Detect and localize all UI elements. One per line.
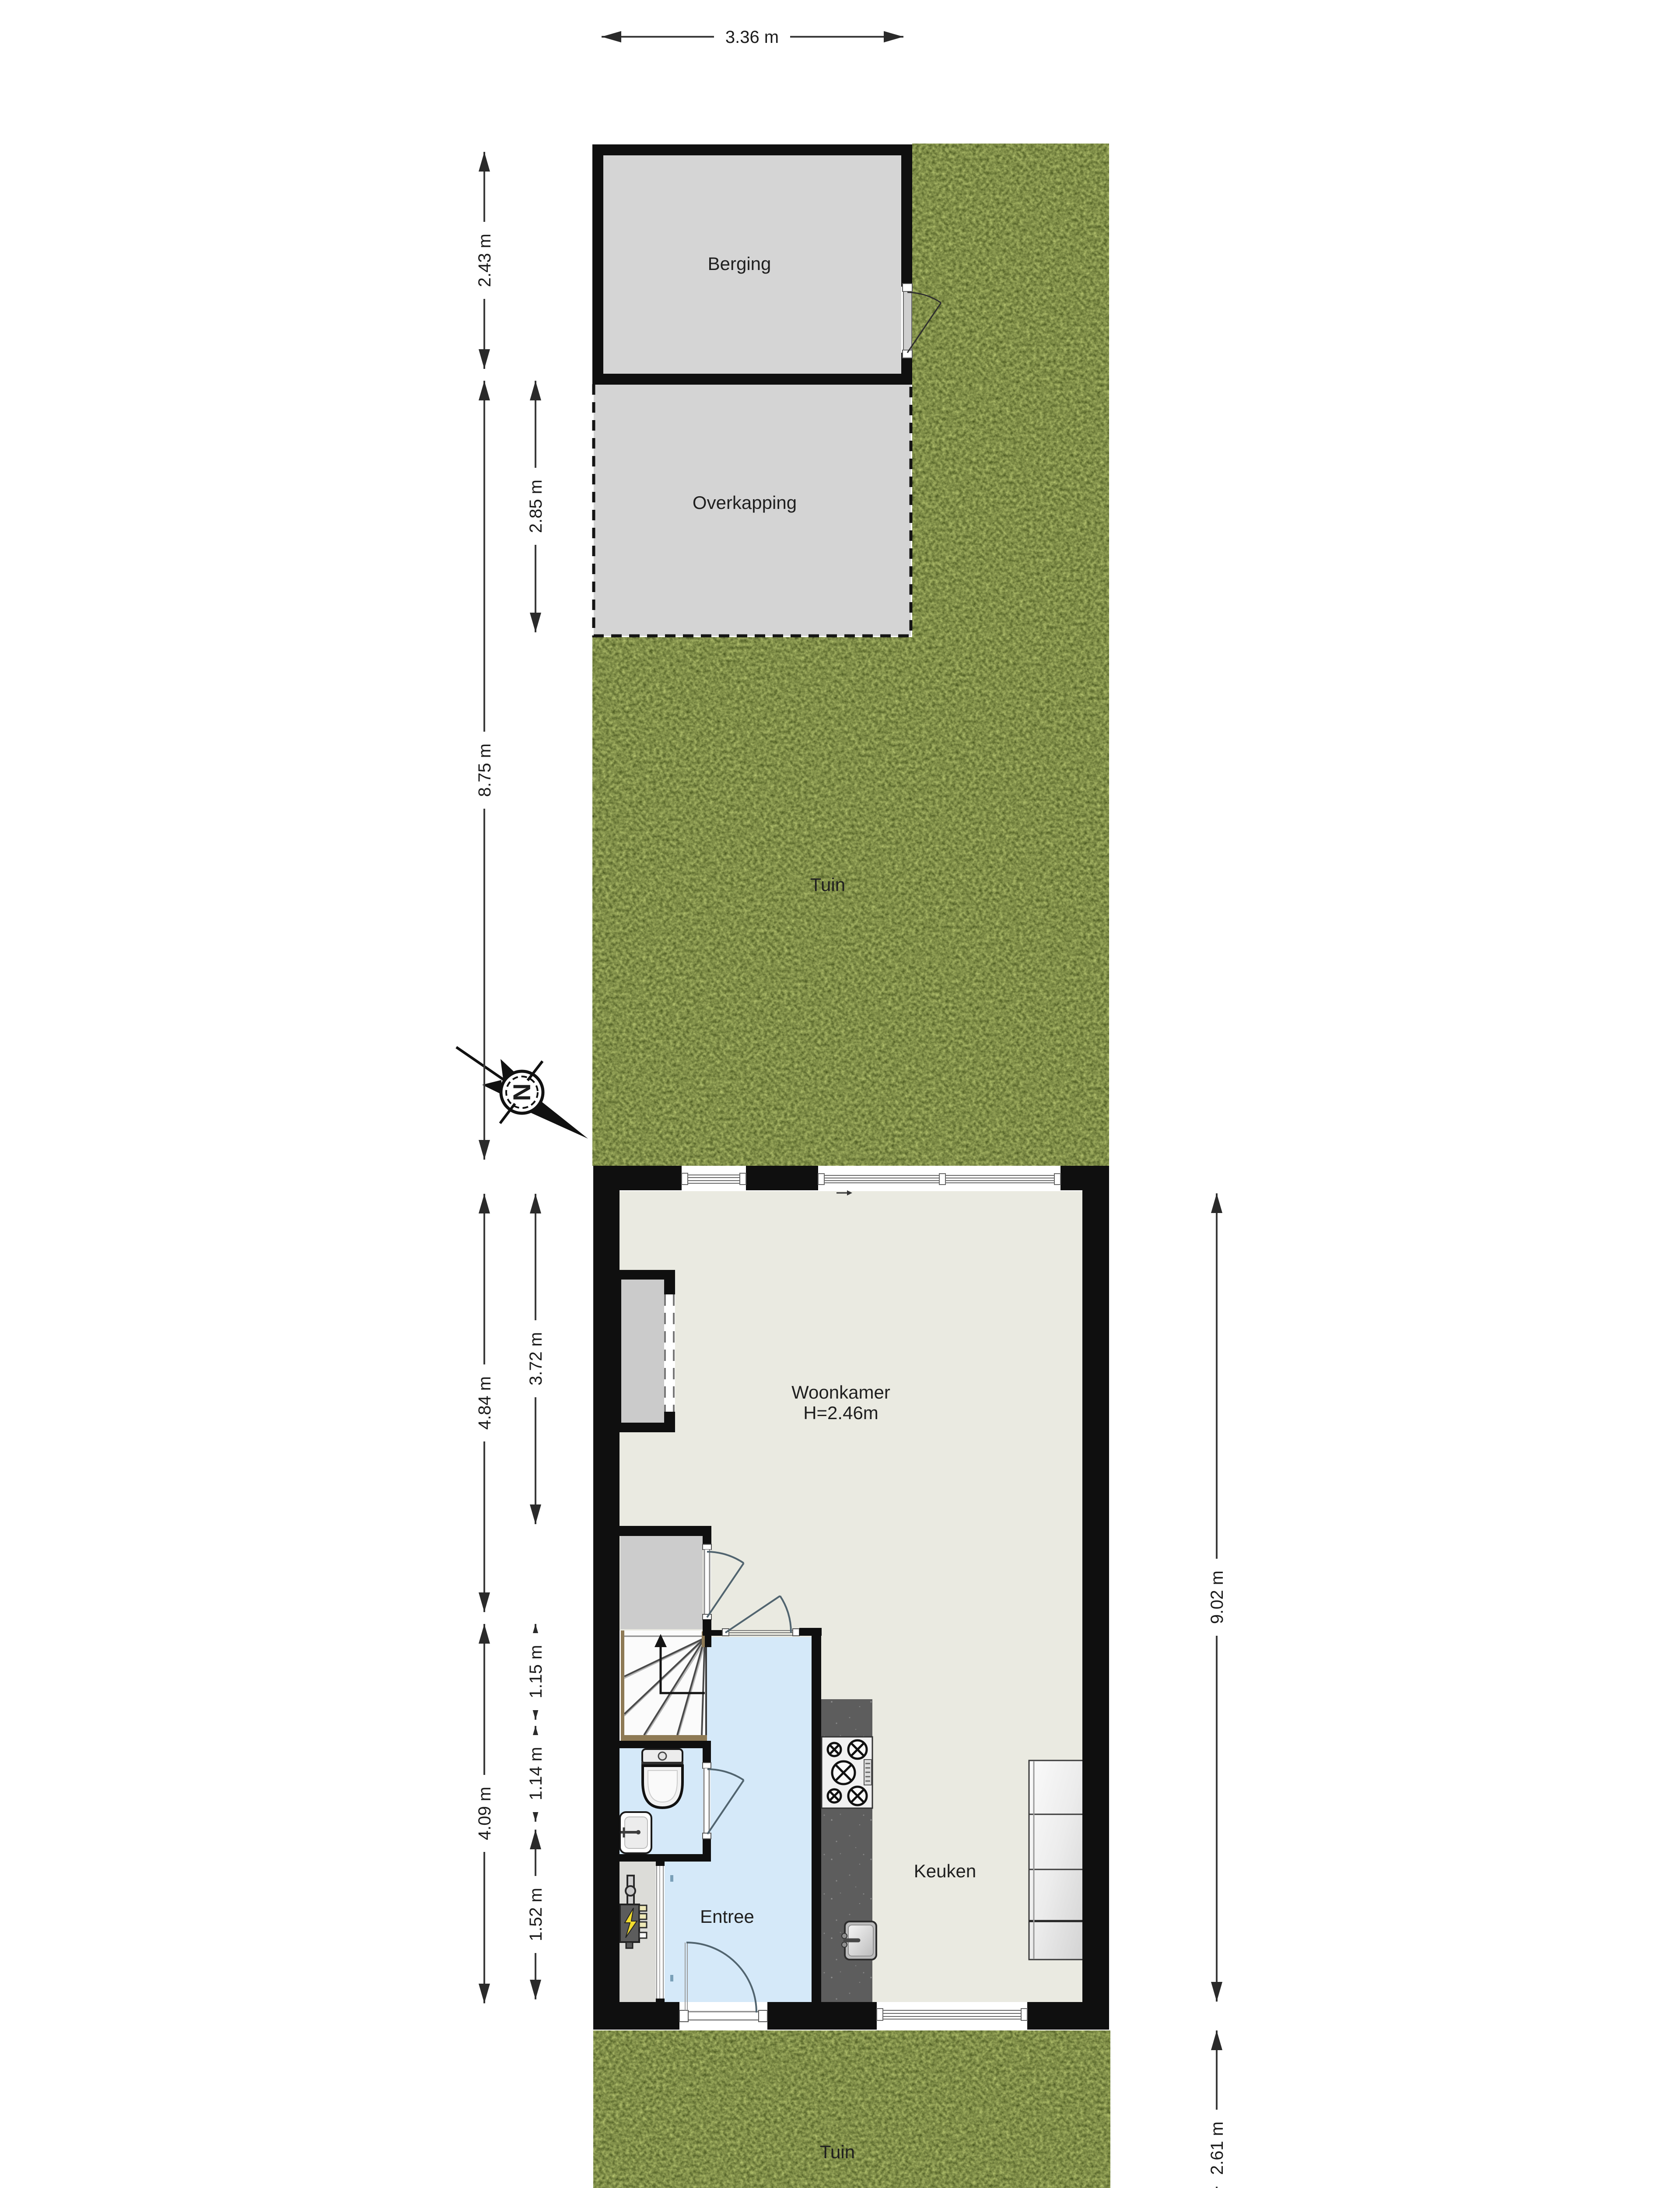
svg-text:4.09 m: 4.09 m <box>475 1787 494 1840</box>
svg-text:1.14 m: 1.14 m <box>526 1747 546 1800</box>
svg-text:Entree: Entree <box>700 1906 754 1927</box>
svg-text:3.72 m: 3.72 m <box>526 1332 546 1385</box>
svg-text:Keuken: Keuken <box>914 1861 976 1881</box>
svg-text:Tuin: Tuin <box>820 2142 855 2162</box>
svg-text:Overkapping: Overkapping <box>693 492 797 513</box>
svg-text:3.36 m: 3.36 m <box>725 28 779 47</box>
svg-text:H=2.46m: H=2.46m <box>803 1403 878 1423</box>
svg-text:Woonkamer: Woonkamer <box>791 1382 890 1403</box>
svg-text:N: N <box>508 1083 536 1101</box>
svg-text:4.84 m: 4.84 m <box>475 1376 494 1430</box>
svg-text:2.61 m: 2.61 m <box>1207 2121 1227 2175</box>
svg-text:1.52 m: 1.52 m <box>526 1888 546 1941</box>
svg-text:Tuin: Tuin <box>810 874 845 895</box>
svg-text:Berging: Berging <box>708 253 771 274</box>
svg-text:1.15 m: 1.15 m <box>526 1645 546 1698</box>
svg-text:2.43 m: 2.43 m <box>475 234 494 287</box>
svg-text:8.75 m: 8.75 m <box>475 743 494 797</box>
svg-text:9.02 m: 9.02 m <box>1207 1571 1227 1624</box>
svg-text:2.85 m: 2.85 m <box>526 480 546 533</box>
